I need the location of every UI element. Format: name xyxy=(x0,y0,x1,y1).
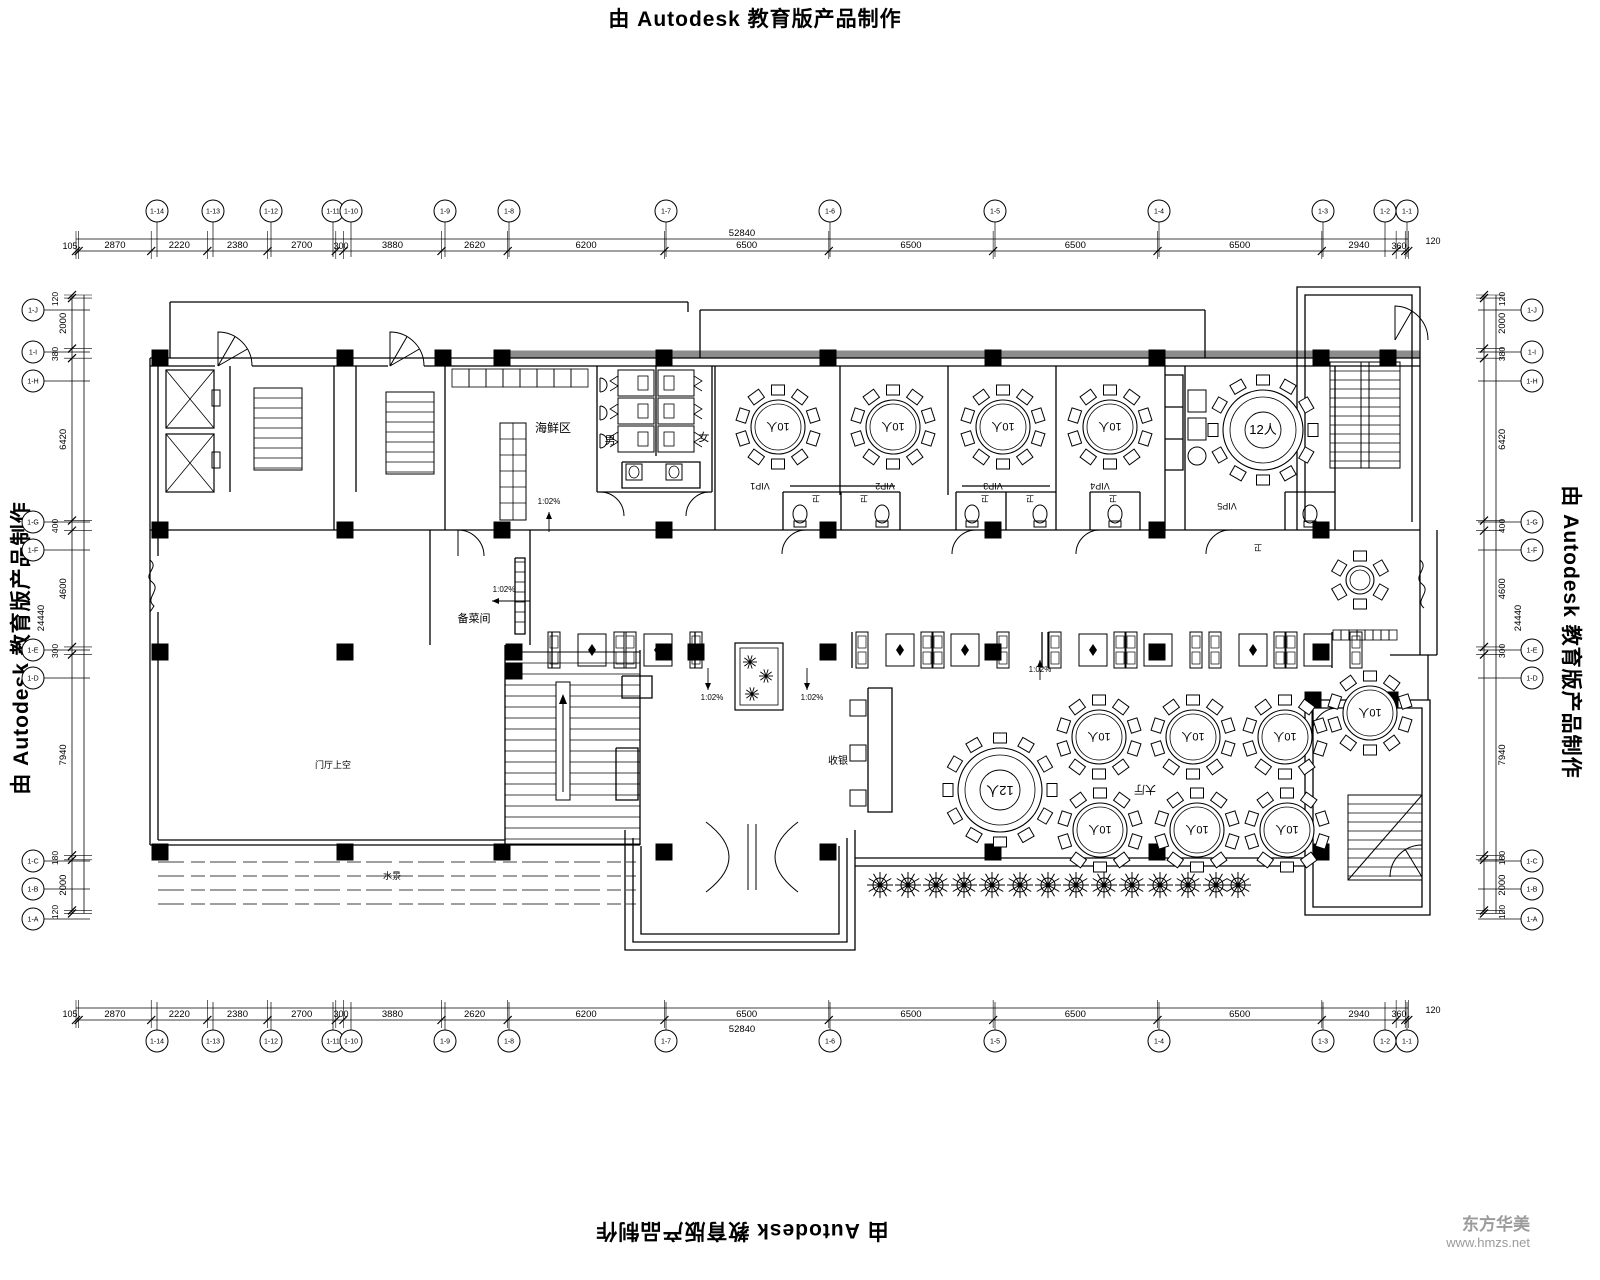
round-table: 10人 xyxy=(1245,788,1329,872)
toilet xyxy=(638,404,648,418)
booth-seat xyxy=(1192,636,1200,648)
booth-seat xyxy=(616,652,624,664)
dim-value: 4600 xyxy=(58,578,69,599)
dim-value: 2380 xyxy=(227,240,248,251)
dim-value: 2700 xyxy=(291,1009,312,1020)
dim-value: 2870 xyxy=(104,240,125,251)
grid-bubble-label: 1-C xyxy=(1526,859,1537,866)
grid-bubble-label: 1-8 xyxy=(504,1039,514,1046)
chair xyxy=(1057,718,1071,733)
booth-seat xyxy=(550,652,558,664)
column xyxy=(820,844,837,861)
tree xyxy=(923,872,949,898)
dim-value: 2000 xyxy=(58,313,69,334)
grid-bubble-label: 1-6 xyxy=(825,1039,835,1046)
chair xyxy=(1299,447,1314,463)
chair xyxy=(792,389,808,405)
column xyxy=(1380,350,1397,367)
table-capacity-label: 10人 xyxy=(881,420,904,433)
grid-bubble-label: 1-11 xyxy=(326,209,340,216)
chair xyxy=(1124,449,1140,465)
column xyxy=(985,522,1002,539)
chair xyxy=(1018,827,1034,842)
column xyxy=(1149,522,1166,539)
toilet-tank xyxy=(1109,521,1121,527)
chair xyxy=(1031,431,1045,446)
tree-core xyxy=(1046,883,1051,888)
table-capacity-label: 10人 xyxy=(1181,730,1204,743)
booth-seat xyxy=(1276,652,1284,664)
tree-core xyxy=(1158,883,1163,888)
round-table: 10人 xyxy=(1243,695,1327,779)
dim-value: 300 xyxy=(1497,644,1507,658)
wc-stall xyxy=(618,426,654,452)
tree xyxy=(951,872,977,898)
cashier-counter xyxy=(850,700,866,716)
chair xyxy=(1058,834,1072,849)
dim-value: 2000 xyxy=(1497,875,1508,896)
chair xyxy=(1069,699,1085,715)
tree-core xyxy=(990,883,995,888)
chair xyxy=(1243,718,1257,733)
chair xyxy=(736,408,750,423)
chair xyxy=(1057,741,1071,756)
chair xyxy=(1068,431,1082,446)
grid-bubble-label: 1-14 xyxy=(150,1039,164,1046)
wc-stall xyxy=(618,398,654,424)
dim-value: 6200 xyxy=(576,240,597,251)
dim-value: 120 xyxy=(1425,1005,1440,1015)
grid-bubble-label: 1-9 xyxy=(440,1039,450,1046)
grid-bubble-label: 1-5 xyxy=(990,1039,1000,1046)
chair xyxy=(1221,718,1235,733)
column xyxy=(1313,644,1330,661)
dim-value: 180 xyxy=(50,851,60,865)
chair xyxy=(851,431,865,446)
window-cell xyxy=(1381,630,1389,640)
grid-bubble-label: 1-2 xyxy=(1380,209,1390,216)
dim-value: 120 xyxy=(1497,292,1507,306)
grid-bubble-label: 1-A xyxy=(28,917,39,924)
chair xyxy=(1280,466,1296,481)
toilet xyxy=(664,376,674,390)
tree-core xyxy=(1018,883,1023,888)
chair xyxy=(1151,718,1165,733)
stall-door xyxy=(610,404,618,419)
sink-bowl xyxy=(629,466,639,478)
dim-value: 2000 xyxy=(58,875,69,896)
chair xyxy=(792,449,808,465)
room-label: VIP1 xyxy=(750,481,770,491)
chair xyxy=(1398,717,1412,732)
chair xyxy=(966,827,982,842)
dim-value: 6500 xyxy=(1065,240,1086,251)
dim-value: 3880 xyxy=(382,240,403,251)
grid-bubble-label: 1-J xyxy=(28,308,38,315)
dim-value: 105 xyxy=(62,241,77,251)
chair xyxy=(1373,560,1388,576)
chair xyxy=(1093,769,1106,779)
booth-seat xyxy=(1276,636,1284,648)
round-table: 10人 xyxy=(1328,671,1412,755)
grid-bubble-label: 1-13 xyxy=(206,209,220,216)
cabinet xyxy=(1188,390,1206,412)
chair xyxy=(1037,808,1052,824)
tree-core xyxy=(878,883,883,888)
chair xyxy=(1212,447,1227,463)
dim-value: 380 xyxy=(1497,347,1507,361)
dim-value: 360 xyxy=(1391,1009,1406,1019)
slope-arrow-head xyxy=(546,512,552,519)
chair xyxy=(973,389,989,405)
tree xyxy=(1063,872,1089,898)
chair xyxy=(1128,834,1142,849)
chair xyxy=(1113,759,1129,775)
tree xyxy=(1225,872,1251,898)
water-feature xyxy=(158,862,636,904)
wc-stall xyxy=(658,370,694,396)
chair xyxy=(1113,699,1129,715)
chair xyxy=(1340,675,1356,691)
booth-seat xyxy=(616,636,624,648)
round-table: 10人 xyxy=(1057,695,1141,779)
chair xyxy=(1373,584,1388,600)
chair xyxy=(1245,834,1259,849)
chair xyxy=(1230,466,1246,481)
room-label: VIP4 xyxy=(1090,481,1110,491)
dim-value: 400 xyxy=(50,519,60,533)
round-table xyxy=(1332,551,1389,609)
chair xyxy=(1017,449,1033,465)
table-capacity-label: 12人 xyxy=(986,783,1013,798)
chair xyxy=(1354,551,1367,561)
tree xyxy=(1007,872,1033,898)
column xyxy=(337,350,354,367)
dim-value: 2940 xyxy=(1348,1009,1369,1020)
booth-seat xyxy=(1127,636,1135,648)
table-capacity-label: 10人 xyxy=(1358,706,1381,719)
room-label: 卫 xyxy=(1026,494,1034,503)
chair xyxy=(1080,449,1096,465)
dim-value: 120 xyxy=(1497,905,1507,919)
grid-bubble-label: 1-7 xyxy=(661,1039,671,1046)
round-table: 10人 xyxy=(1151,695,1235,779)
column xyxy=(152,350,169,367)
column xyxy=(1313,522,1330,539)
chair xyxy=(748,389,764,405)
table-capacity-label: 12人 xyxy=(1249,422,1276,437)
chair xyxy=(1281,788,1294,798)
dim-value: 2870 xyxy=(104,1009,125,1020)
dim-value: 2380 xyxy=(227,1009,248,1020)
chair xyxy=(1332,584,1347,600)
grid-bubble-label: 1-F xyxy=(28,548,39,555)
toilet-tank xyxy=(966,521,978,527)
chair xyxy=(1364,671,1377,681)
column xyxy=(494,522,511,539)
sink-bowl xyxy=(669,466,679,478)
grid-bubble-label: 1-5 xyxy=(990,209,1000,216)
column xyxy=(494,844,511,861)
chair xyxy=(1187,769,1200,779)
dim-value: 4600 xyxy=(1497,578,1508,599)
chair xyxy=(994,733,1007,743)
chair xyxy=(1191,788,1204,798)
grid-bubble-label: 1-12 xyxy=(264,209,278,216)
chair xyxy=(863,449,879,465)
grid-bubble-label: 1-13 xyxy=(206,1039,220,1046)
dim-value: 360 xyxy=(1391,241,1406,251)
grid-bubble-label: 1-14 xyxy=(150,209,164,216)
booth-seat xyxy=(1192,652,1200,664)
dim-value: 6500 xyxy=(736,1009,757,1020)
slope-note: 1:02% xyxy=(538,497,561,506)
slope-note: 1:02% xyxy=(493,585,516,594)
toilet xyxy=(638,376,648,390)
dim-value: 6200 xyxy=(576,1009,597,1020)
room-label: 卫 xyxy=(860,494,868,503)
window-cell xyxy=(1341,630,1349,640)
column xyxy=(435,350,452,367)
elevator-door xyxy=(212,390,220,406)
window-cell xyxy=(1333,630,1341,640)
round-table: 10人 xyxy=(961,385,1045,469)
booth-seat xyxy=(1127,652,1135,664)
chair xyxy=(1094,788,1107,798)
grid-bubble-label: 1-B xyxy=(1527,887,1538,894)
room-label: 大厅 xyxy=(1134,783,1156,797)
booth-seat xyxy=(626,652,634,664)
chair xyxy=(1037,756,1052,772)
round-table: 10人 xyxy=(1068,385,1152,469)
table-capacity-label: 10人 xyxy=(766,420,789,433)
dim-value: 7940 xyxy=(58,744,69,765)
booth-seat xyxy=(1051,652,1059,664)
chair xyxy=(947,808,962,824)
column xyxy=(506,663,523,680)
window-cell xyxy=(1389,630,1397,640)
grid-bubble-label: 1-4 xyxy=(1154,209,1164,216)
column xyxy=(656,350,673,367)
watermark-company: 东方华美 xyxy=(1360,1214,1530,1235)
urinal xyxy=(600,378,607,392)
cashier-counter xyxy=(850,745,866,761)
chair xyxy=(1114,792,1130,808)
dim-value: 120 xyxy=(50,905,60,919)
side-table xyxy=(1188,447,1206,465)
grid-bubble-label: 1-3 xyxy=(1318,1039,1328,1046)
dim-value: 6500 xyxy=(1229,1009,1250,1020)
booth-seat xyxy=(858,636,866,648)
chair xyxy=(736,431,750,446)
booth-seat xyxy=(1352,636,1360,648)
chair xyxy=(748,449,764,465)
dim-value: 6500 xyxy=(1065,1009,1086,1020)
chair xyxy=(1080,389,1096,405)
table-star xyxy=(896,644,904,656)
chair xyxy=(1221,741,1235,756)
room-label: VIP5 xyxy=(1217,501,1237,511)
column xyxy=(820,644,837,661)
chair xyxy=(772,385,785,395)
column xyxy=(494,350,511,367)
dim-value: 2000 xyxy=(1497,313,1508,334)
table-capacity-label: 10人 xyxy=(1087,730,1110,743)
grid-bubble-label: 1-H xyxy=(1526,379,1537,386)
grid-bubble-label: 1-I xyxy=(29,350,37,357)
room-label: VIP2 xyxy=(875,481,895,491)
round-table: 10人 xyxy=(851,385,935,469)
toilet-tank xyxy=(794,521,806,527)
grid-bubble-label: 1-G xyxy=(27,520,39,527)
wc-stall xyxy=(658,426,694,452)
chair xyxy=(1328,717,1342,732)
chair xyxy=(1364,745,1377,755)
dim-value: 6500 xyxy=(1229,240,1250,251)
booth-seat xyxy=(934,636,942,648)
slope-note: 1:02% xyxy=(801,693,824,702)
toilet xyxy=(638,432,648,446)
grid-bubble-label: 1-7 xyxy=(661,209,671,216)
chair xyxy=(1281,862,1294,872)
dim-value: 2220 xyxy=(169,240,190,251)
chair xyxy=(997,385,1010,395)
table-capacity-label: 10人 xyxy=(1098,420,1121,433)
grid-bubble-label: 1-D xyxy=(1526,676,1537,683)
grid-bubble-label: 1-C xyxy=(27,859,38,866)
chair xyxy=(887,459,900,469)
chair xyxy=(1384,675,1400,691)
elevator-door xyxy=(212,452,220,468)
chair xyxy=(1155,811,1169,826)
toilet xyxy=(875,505,889,523)
booth-seat xyxy=(934,652,942,664)
dim-value: 2220 xyxy=(169,1009,190,1020)
column xyxy=(337,522,354,539)
grid-bubble-label: 1-F xyxy=(1527,548,1538,555)
urinal xyxy=(600,406,607,420)
grid-bubble-label: 1-H xyxy=(27,379,38,386)
toilet xyxy=(793,505,807,523)
column xyxy=(506,644,523,661)
chair xyxy=(1138,431,1152,446)
table-star xyxy=(961,644,969,656)
dim-value: 120 xyxy=(50,292,60,306)
table-capacity-label: 10人 xyxy=(991,420,1014,433)
dim-value: 7940 xyxy=(1497,744,1508,765)
chair xyxy=(1127,718,1141,733)
dim-value: 2700 xyxy=(291,240,312,251)
column xyxy=(820,350,837,367)
booth-seat xyxy=(550,636,558,648)
column xyxy=(656,844,673,861)
watermark-url: www.hmzs.net xyxy=(1360,1235,1530,1251)
column xyxy=(152,844,169,861)
window-cell xyxy=(503,369,520,387)
dimension-chains: 2870222023802700388026206200650065006500… xyxy=(36,228,1524,1035)
column xyxy=(152,644,169,661)
tree xyxy=(895,872,921,898)
room-label: 卫 xyxy=(812,494,820,503)
chair xyxy=(973,449,989,465)
column xyxy=(820,522,837,539)
room-label: 男 xyxy=(605,435,616,447)
chair xyxy=(1047,784,1057,797)
grid-bubble-label: 1-4 xyxy=(1154,1039,1164,1046)
chair xyxy=(772,459,785,469)
tree-core xyxy=(906,883,911,888)
grid-bubble-label: 1-3 xyxy=(1318,209,1328,216)
tree xyxy=(1091,872,1117,898)
chair xyxy=(1208,424,1218,437)
tree xyxy=(979,872,1005,898)
toilet-tank xyxy=(876,521,888,527)
booth-seat xyxy=(1211,652,1219,664)
grid-bubble-label: 1-10 xyxy=(344,209,358,216)
chair xyxy=(947,756,962,772)
tree-core xyxy=(1102,883,1107,888)
table-capacity-label: 10人 xyxy=(1275,823,1298,836)
chair xyxy=(863,389,879,405)
planter xyxy=(740,648,778,705)
chair xyxy=(1163,699,1179,715)
dim-value: 6500 xyxy=(736,240,757,251)
chair xyxy=(1313,741,1327,756)
tree xyxy=(1035,872,1061,898)
round-table: 10人 xyxy=(1155,788,1239,872)
dim-value: 3880 xyxy=(382,1009,403,1020)
booth-seat xyxy=(1116,652,1124,664)
chair xyxy=(1279,769,1292,779)
room-label: 女 xyxy=(699,430,710,444)
round-table: 10人 xyxy=(736,385,820,469)
room-label: 卫 xyxy=(981,494,989,503)
dining-tables: 10人10人10人10人12人12人10人10人10人10人10人10人10人 xyxy=(736,375,1412,872)
grid-bubble-label: 1-1 xyxy=(1402,1039,1412,1046)
window-cell xyxy=(452,369,469,387)
chair xyxy=(1255,699,1271,715)
round-table: 12人 xyxy=(1208,375,1318,485)
dim-value: 380 xyxy=(50,347,60,361)
floor-plan-drawing: 2870222023802700388026206200650065006500… xyxy=(0,0,1600,1280)
wc-stall xyxy=(658,398,694,424)
chair xyxy=(1017,389,1033,405)
toilet-tank xyxy=(1034,521,1046,527)
column xyxy=(656,522,673,539)
toilet xyxy=(664,404,674,418)
dim-value: 6420 xyxy=(58,429,69,450)
tree-core xyxy=(1214,883,1219,888)
planter xyxy=(735,643,783,710)
stall-door xyxy=(694,404,702,419)
dim-overall: 52840 xyxy=(729,1024,755,1035)
tree xyxy=(1147,872,1173,898)
chair xyxy=(1257,375,1270,385)
grid-bubble-label: 1-1 xyxy=(1402,209,1412,216)
chair xyxy=(1128,811,1142,826)
dim-value: 6500 xyxy=(900,240,921,251)
chair xyxy=(1127,741,1141,756)
grid-bubble-label: 1-11 xyxy=(326,1039,340,1046)
booth-seat xyxy=(923,652,931,664)
chair xyxy=(1328,694,1342,709)
tree-core xyxy=(1130,883,1135,888)
chair xyxy=(966,737,982,752)
tree-core xyxy=(934,883,939,888)
chair xyxy=(1093,695,1106,705)
slope-arrow-head xyxy=(804,683,810,690)
grid-bubble-label: 1-E xyxy=(28,648,39,655)
